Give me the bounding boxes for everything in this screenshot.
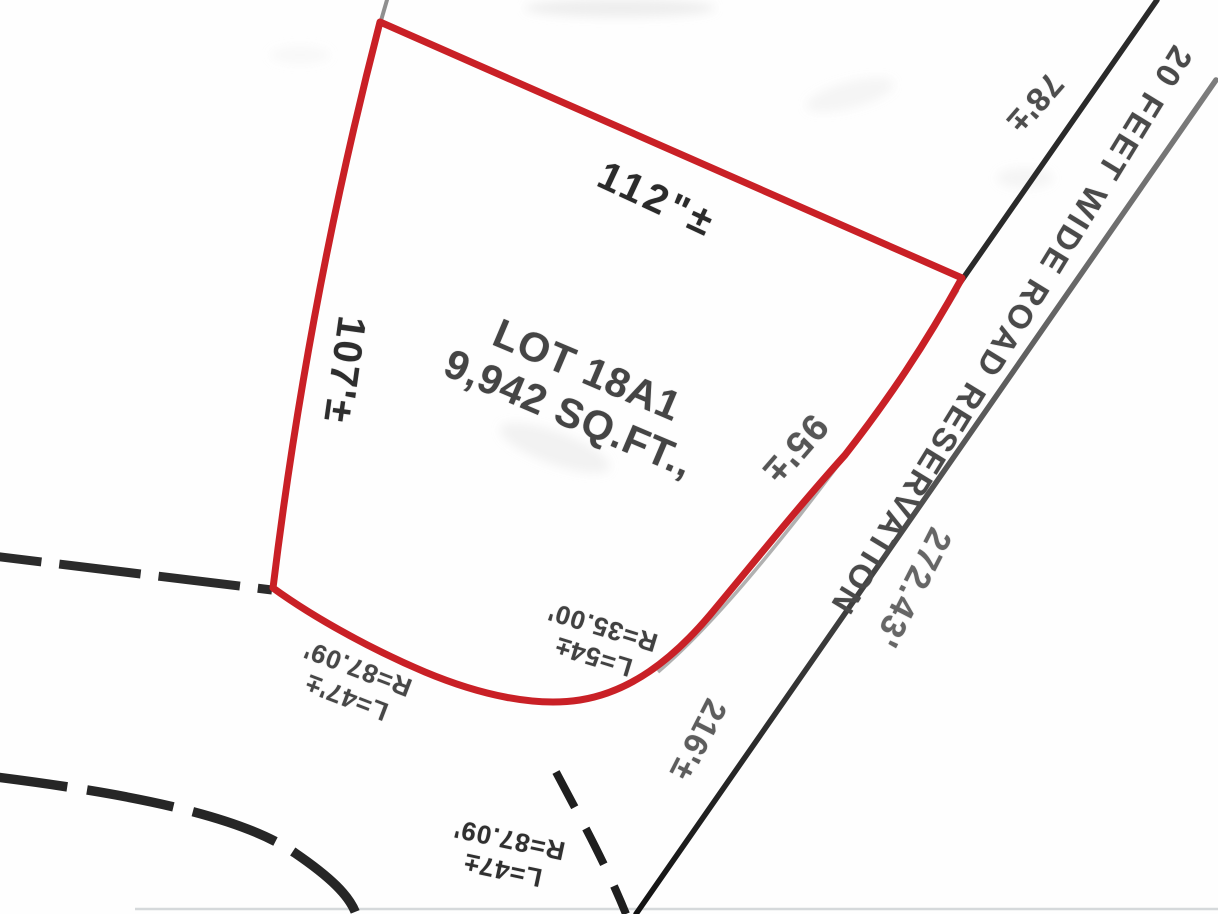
plat-linework (0, 0, 1218, 914)
dashed-road-edge-upper-left (0, 552, 272, 590)
plat-survey-canvas: 112"± LOT 18A1 9,942 SQ.FT., 107'± 95'± … (0, 0, 1218, 914)
dashed-road-edge-bottom-center (556, 772, 626, 914)
dashed-road-edge-lower-left (0, 775, 356, 914)
